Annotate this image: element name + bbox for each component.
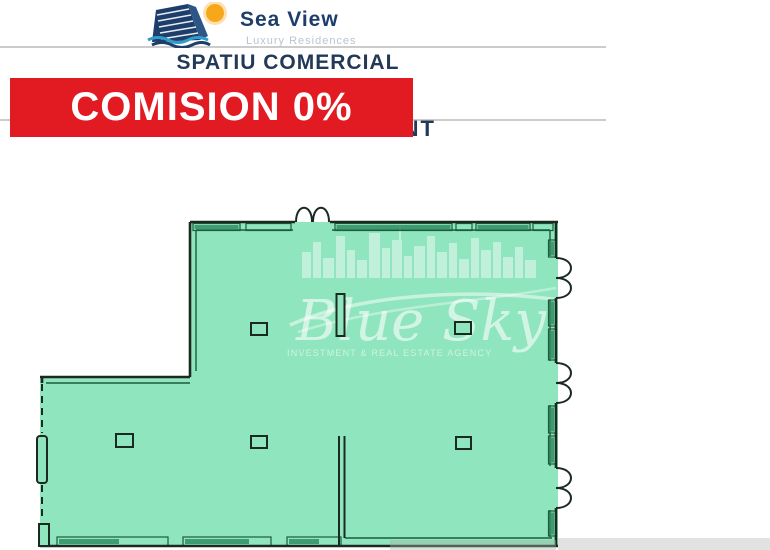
logo-subtitle: Luxury Residences bbox=[246, 35, 357, 47]
commission-banner: COMISION 0% bbox=[10, 78, 413, 137]
commission-banner-label: COMISION 0% bbox=[70, 85, 352, 130]
page-title: SPATIU COMERCIAL bbox=[60, 51, 516, 75]
shadow-band-right bbox=[558, 538, 770, 550]
wall-stub bbox=[337, 294, 345, 336]
left-window-marker bbox=[37, 436, 47, 483]
plan-area bbox=[40, 222, 558, 546]
logo-title: Sea View bbox=[240, 8, 357, 32]
sun-icon bbox=[203, 2, 227, 25]
side-door-swing-icons bbox=[556, 258, 571, 508]
watermark-tagline: INVESTMENT & REAL ESTATE AGENCY bbox=[287, 348, 492, 358]
logo-text: Sea View Luxury Residences bbox=[240, 2, 357, 47]
logo: Sea View Luxury Residences bbox=[138, 2, 357, 48]
corner-post bbox=[39, 524, 49, 546]
logo-icon bbox=[138, 2, 234, 48]
entrance-door-swing-icon bbox=[296, 208, 329, 222]
shadow-band-overlay bbox=[390, 540, 556, 550]
watermark-name: Blue Sky bbox=[295, 289, 547, 354]
flyer-page: Sea View Luxury Residences SPATIU COMERC… bbox=[0, 0, 770, 550]
